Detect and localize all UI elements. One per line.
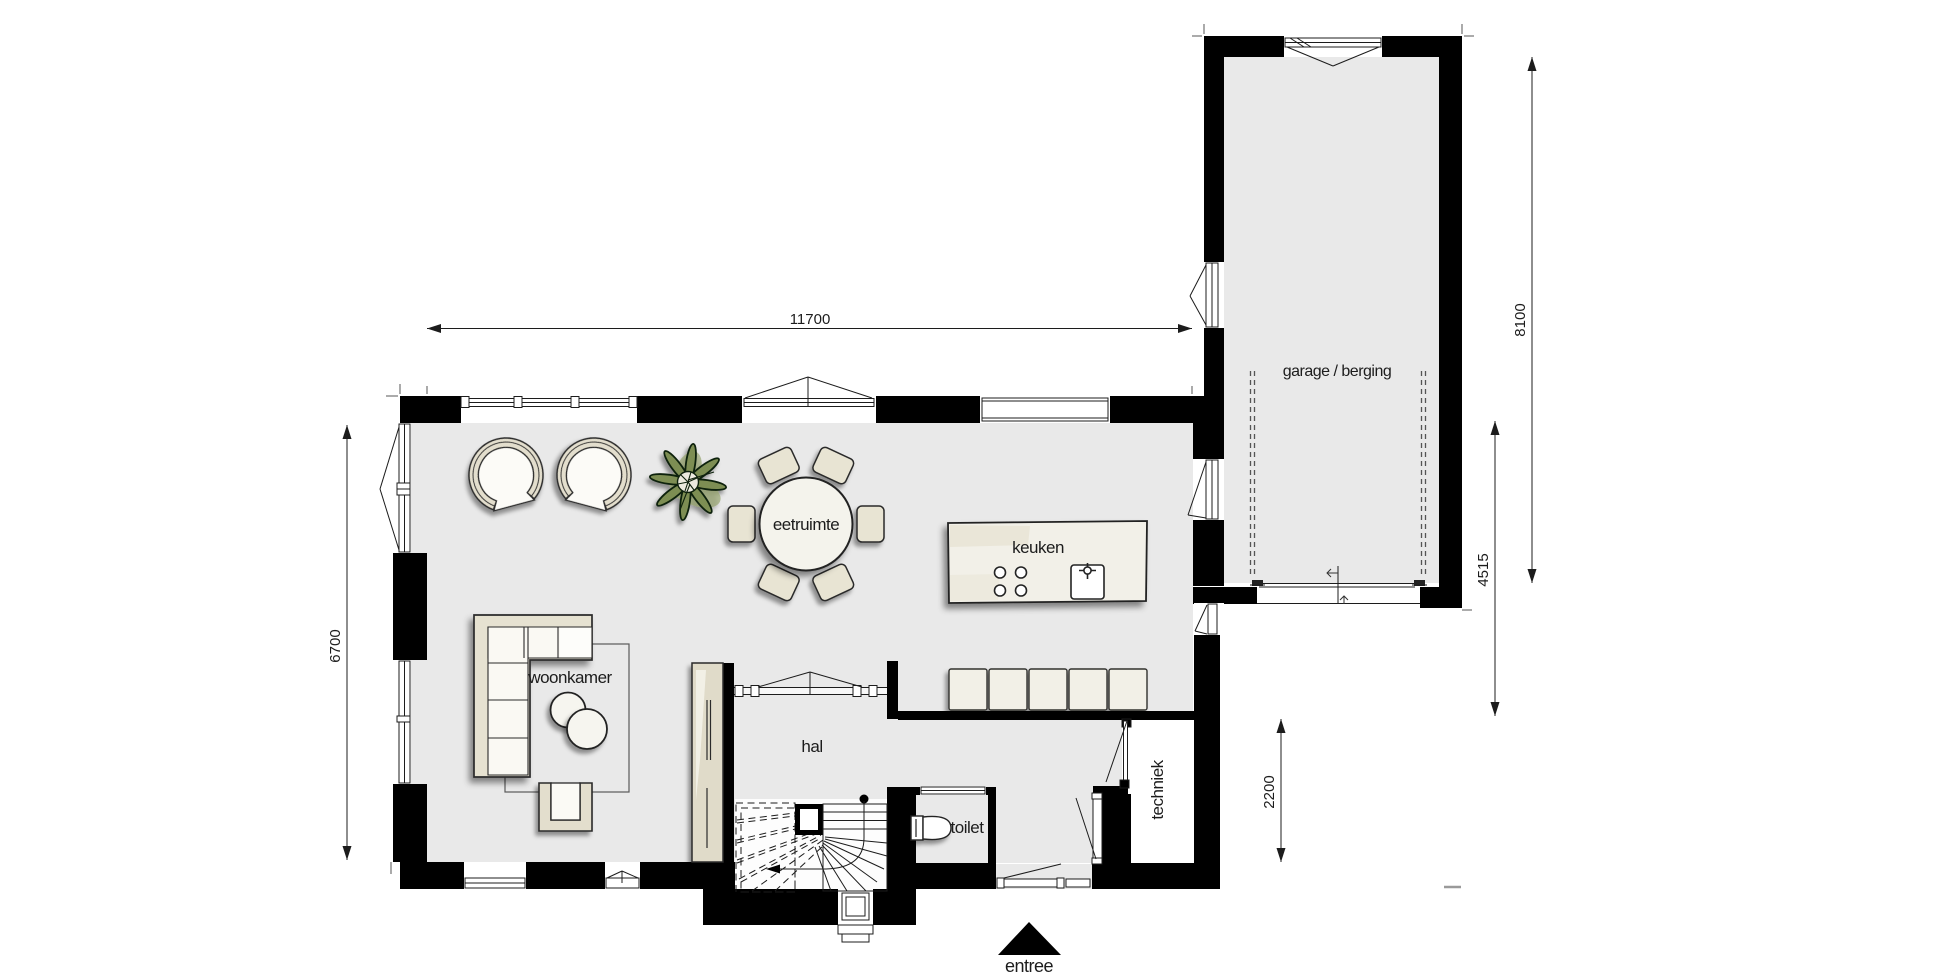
svg-text:hal: hal xyxy=(801,737,822,756)
svg-text:woonkamer: woonkamer xyxy=(527,668,612,687)
svg-text:keuken: keuken xyxy=(1012,538,1064,557)
svg-text:2200: 2200 xyxy=(1261,775,1278,808)
svg-text:garage / berging: garage / berging xyxy=(1283,363,1392,380)
svg-text:toilet: toilet xyxy=(951,818,985,837)
svg-text:6700: 6700 xyxy=(327,629,344,662)
svg-text:11700: 11700 xyxy=(790,311,831,328)
svg-text:4515: 4515 xyxy=(1475,553,1492,586)
svg-text:8100: 8100 xyxy=(1512,303,1529,336)
svg-text:entree: entree xyxy=(1005,956,1054,975)
svg-text:techniek: techniek xyxy=(1148,759,1167,819)
svg-text:eetruimte: eetruimte xyxy=(773,515,839,534)
